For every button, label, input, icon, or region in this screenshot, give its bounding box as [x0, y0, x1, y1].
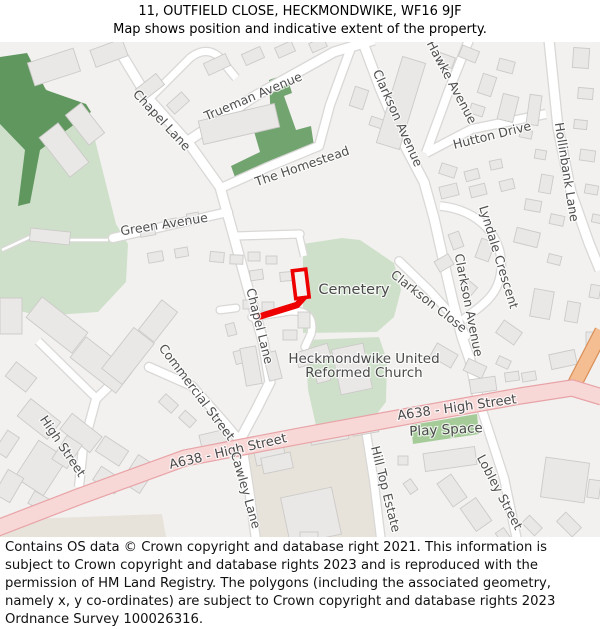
page-subtitle: Map shows position and indicative extent…	[0, 21, 600, 39]
street-label: Cemetery	[318, 282, 390, 298]
copyright-text: Contains OS data © Crown copyright and d…	[5, 539, 595, 629]
property-map: Chapel LaneTrueman AvenueClarkson Avenue…	[0, 42, 600, 537]
map-image: Chapel LaneTrueman AvenueClarkson Avenue…	[0, 42, 600, 537]
street-label: Reformed Church	[305, 365, 423, 381]
property-plot-outline	[292, 269, 309, 298]
page-title: 11, OUTFIELD CLOSE, HECKMONDWIKE, WF16 9…	[0, 3, 600, 21]
footer: Contains OS data © Crown copyright and d…	[0, 537, 600, 625]
header: 11, OUTFIELD CLOSE, HECKMONDWIKE, WF16 9…	[0, 0, 600, 42]
